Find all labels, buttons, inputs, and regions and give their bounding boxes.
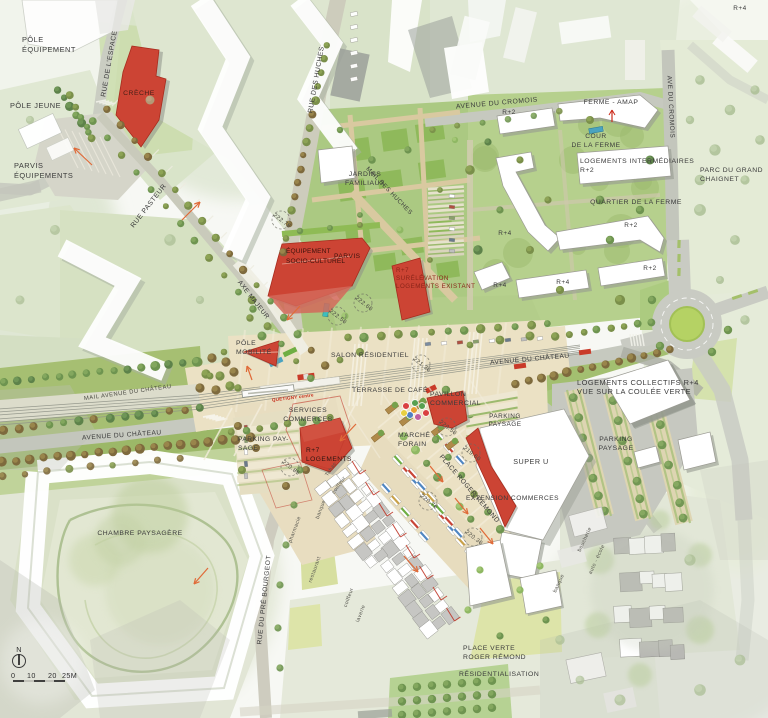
svg-text:SALON RÉSIDENTIEL: SALON RÉSIDENTIEL [331, 350, 409, 359]
svg-text:PARVIS: PARVIS [334, 253, 361, 260]
svg-text:PARKING: PARKING [599, 436, 633, 443]
svg-text:PÔLE JEUNE: PÔLE JEUNE [10, 101, 61, 110]
svg-text:R+2: R+2 [643, 265, 656, 272]
svg-text:SURÉLÉVATION: SURÉLÉVATION [396, 275, 449, 282]
svg-text:R+2: R+2 [580, 167, 594, 174]
svg-text:QUARTIER DE LA FERME: QUARTIER DE LA FERME [590, 199, 682, 206]
svg-text:R+2: R+2 [624, 222, 637, 229]
svg-text:R+2: R+2 [502, 109, 515, 116]
svg-text:COMMERCIAL: COMMERCIAL [430, 400, 481, 407]
svg-text:FAMILIAUX: FAMILIAUX [345, 180, 385, 187]
svg-text:PARKING: PARKING [489, 413, 521, 420]
svg-text:PÔLE: PÔLE [22, 35, 44, 44]
svg-text:10: 10 [27, 671, 36, 680]
svg-text:SERVICES: SERVICES [289, 407, 327, 414]
svg-text:CRÈCHE: CRÈCHE [123, 88, 155, 97]
svg-text:SUPER U: SUPER U [513, 457, 548, 466]
svg-text:PÔLE: PÔLE [236, 338, 256, 347]
svg-text:0: 0 [11, 671, 15, 680]
svg-text:ÉQUIPEMENTS: ÉQUIPEMENTS [14, 171, 73, 180]
svg-text:LOGEMENTS: LOGEMENTS [306, 456, 352, 463]
svg-text:PARVIS: PARVIS [14, 161, 43, 170]
svg-text:JARDINS: JARDINS [349, 171, 382, 178]
svg-text:ÉQUIPEMENT: ÉQUIPEMENT [22, 45, 76, 54]
svg-text:MOBILITÉ: MOBILITÉ [236, 347, 272, 356]
svg-text:20: 20 [48, 671, 57, 680]
svg-text:DE LA FERME: DE LA FERME [571, 142, 620, 149]
svg-text:PLACE VERTE: PLACE VERTE [463, 645, 515, 652]
svg-text:SAGE: SAGE [238, 445, 258, 452]
svg-text:MARCHÉ: MARCHÉ [398, 430, 430, 439]
svg-text:FORAIN: FORAIN [398, 441, 427, 448]
svg-text:LOGEMENTS INTERMÉDIAIRES: LOGEMENTS INTERMÉDIAIRES [580, 156, 694, 165]
svg-text:R+7: R+7 [396, 267, 409, 274]
svg-text:RÉSIDENTIALISATION: RÉSIDENTIALISATION [459, 669, 539, 678]
svg-text:PAYSAGE: PAYSAGE [599, 445, 634, 452]
svg-text:CHAMBRE PAYSAGÈRE: CHAMBRE PAYSAGÈRE [97, 528, 182, 537]
svg-text:PAVILLON: PAVILLON [430, 391, 466, 398]
svg-text:ÉQUIPEMENT: ÉQUIPEMENT [286, 246, 331, 255]
svg-text:R+4: R+4 [493, 282, 506, 289]
svg-text:CHAIGNET: CHAIGNET [700, 176, 739, 183]
svg-text:R+4: R+4 [733, 5, 746, 12]
svg-text:VUE SUR LA COULÉE VERTE: VUE SUR LA COULÉE VERTE [577, 387, 691, 396]
svg-text:LOGEMENTS EXISTANT: LOGEMENTS EXISTANT [396, 283, 475, 290]
svg-text:COUR: COUR [585, 133, 606, 140]
svg-text:N: N [16, 645, 22, 654]
svg-text:TERRASSE DE CAFÉ: TERRASSE DE CAFÉ [352, 385, 428, 394]
svg-text:EXTENSION COMMERCES: EXTENSION COMMERCES [466, 495, 559, 502]
svg-text:R+4: R+4 [498, 230, 511, 237]
svg-text:PARC DU GRAND: PARC DU GRAND [700, 167, 763, 174]
svg-text:25M: 25M [62, 671, 77, 680]
svg-text:ROGER RÉMOND: ROGER RÉMOND [463, 652, 526, 661]
svg-text:R+7: R+7 [306, 447, 320, 454]
svg-text:FERME - AMAP: FERME - AMAP [584, 99, 639, 106]
svg-text:LOGEMENTS COLLECTIFS R+4: LOGEMENTS COLLECTIFS R+4 [577, 378, 699, 387]
svg-text:PARKING PAY-: PARKING PAY- [238, 436, 289, 443]
svg-text:COMMERCES: COMMERCES [283, 416, 332, 423]
svg-text:R+4: R+4 [556, 279, 569, 286]
svg-text:PAYSAGE: PAYSAGE [488, 421, 521, 428]
